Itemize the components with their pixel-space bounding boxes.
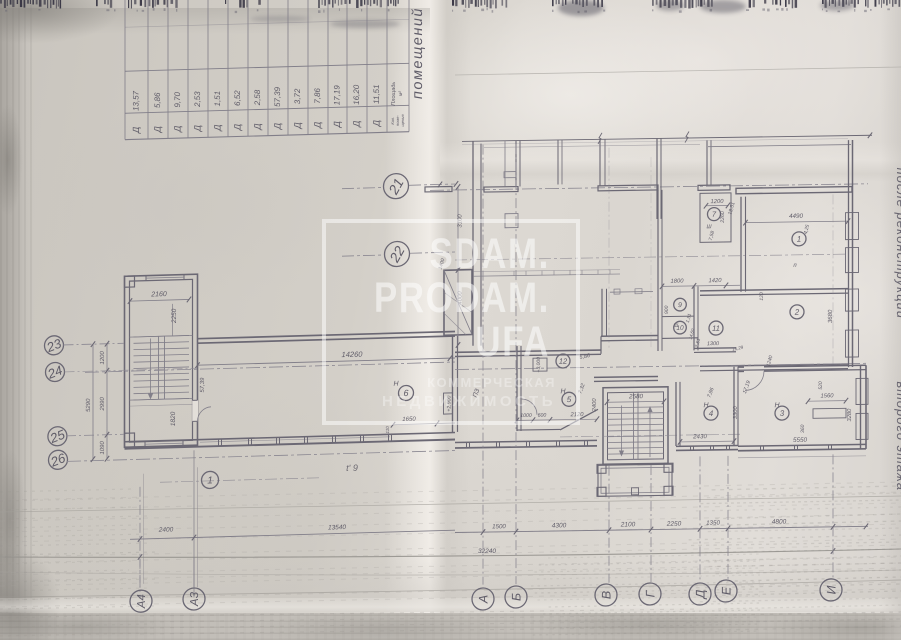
svg-text:7: 7 bbox=[712, 210, 717, 219]
svg-text:21: 21 bbox=[385, 175, 407, 197]
svg-text:2430: 2430 bbox=[692, 433, 707, 440]
svg-text:2100: 2100 bbox=[620, 521, 636, 528]
svg-text:Д: Д bbox=[193, 124, 203, 132]
svg-text:7,86: 7,86 bbox=[706, 387, 715, 399]
svg-text:900: 900 bbox=[664, 305, 670, 314]
svg-text:2990: 2990 bbox=[100, 396, 106, 411]
svg-text:520: 520 bbox=[818, 381, 824, 390]
svg-text:1200: 1200 bbox=[711, 199, 725, 205]
svg-text:4: 4 bbox=[709, 409, 714, 418]
svg-text:2260: 2260 bbox=[720, 211, 726, 224]
svg-text:1500: 1500 bbox=[492, 523, 506, 530]
svg-text:1800: 1800 bbox=[671, 279, 685, 285]
svg-text:1820: 1820 bbox=[170, 411, 177, 426]
svg-text:Д: Д bbox=[213, 124, 223, 132]
svg-text:Д: Д bbox=[332, 120, 342, 128]
svg-text:Д: Д bbox=[693, 589, 707, 600]
svg-text:360: 360 bbox=[800, 424, 806, 433]
svg-text:120: 120 bbox=[759, 292, 765, 301]
svg-text:5550: 5550 bbox=[793, 437, 808, 444]
svg-text:Д: Д bbox=[153, 125, 163, 133]
svg-text:3,72: 3,72 bbox=[293, 88, 302, 104]
svg-text:1: 1 bbox=[797, 235, 801, 244]
svg-text:13540: 13540 bbox=[328, 524, 346, 532]
svg-text:11,51: 11,51 bbox=[372, 84, 381, 104]
svg-text:Ш: Ш bbox=[706, 224, 712, 230]
svg-text:1,51: 1,51 bbox=[685, 313, 693, 324]
svg-text:32240: 32240 bbox=[478, 548, 496, 555]
svg-text:4300: 4300 bbox=[552, 522, 567, 529]
svg-text:п: п bbox=[793, 263, 797, 269]
svg-text:5290: 5290 bbox=[86, 398, 92, 412]
svg-text:щения: щения bbox=[400, 113, 405, 126]
svg-text:2,51: 2,51 bbox=[694, 338, 703, 350]
svg-text:И: И bbox=[824, 585, 838, 594]
svg-text:57,39: 57,39 bbox=[273, 86, 282, 107]
svg-text:А3: А3 bbox=[189, 591, 201, 607]
svg-text:Д: Д bbox=[273, 122, 283, 130]
svg-text:1: 1 bbox=[207, 475, 213, 486]
svg-text:3300: 3300 bbox=[733, 406, 739, 420]
svg-text:57,39: 57,39 bbox=[200, 377, 206, 393]
svg-text:второго этажа: второго этажа bbox=[894, 381, 901, 491]
svg-text:2400: 2400 bbox=[158, 526, 174, 533]
svg-text:Площадь: Площадь bbox=[391, 82, 397, 106]
svg-text:1200: 1200 bbox=[100, 350, 106, 364]
svg-text:Д: Д bbox=[313, 121, 323, 129]
svg-text:1560: 1560 bbox=[821, 393, 835, 399]
svg-text:2,58: 2,58 bbox=[253, 89, 262, 106]
svg-text:9,70: 9,70 bbox=[173, 91, 182, 107]
svg-text:1300: 1300 bbox=[707, 341, 720, 347]
svg-text:Д: Д bbox=[233, 123, 243, 131]
svg-text:Д: Д bbox=[293, 121, 303, 129]
svg-text:4800: 4800 bbox=[772, 519, 787, 526]
svg-text:Д: Д bbox=[253, 123, 263, 131]
svg-text:2,53: 2,53 bbox=[193, 91, 202, 108]
svg-text:А4: А4 bbox=[136, 594, 148, 609]
svg-text:3: 3 bbox=[780, 409, 785, 418]
svg-text:помещений: помещений bbox=[410, 7, 426, 100]
svg-text:В: В bbox=[599, 591, 613, 600]
svg-text:Б: Б bbox=[509, 593, 523, 601]
svg-text:17,19: 17,19 bbox=[742, 380, 752, 395]
svg-text:5,86: 5,86 bbox=[153, 92, 162, 108]
svg-text:2400: 2400 bbox=[592, 398, 598, 413]
svg-text:17,19: 17,19 bbox=[333, 85, 342, 106]
svg-text:после реконструкции: после реконструкции bbox=[894, 167, 901, 319]
svg-text:Ш: Ш bbox=[674, 323, 679, 329]
svg-text:16,20: 16,20 bbox=[352, 84, 361, 105]
svg-text:7,58: 7,58 bbox=[708, 230, 716, 241]
svg-text:13,57: 13,57 bbox=[132, 90, 141, 111]
svg-text:Е: Е bbox=[719, 586, 733, 595]
svg-text:2250: 2250 bbox=[666, 521, 682, 528]
svg-text:3280: 3280 bbox=[847, 408, 853, 422]
svg-text:9: 9 bbox=[678, 302, 682, 309]
svg-text:м²: м² bbox=[398, 91, 404, 97]
svg-text:2580: 2580 bbox=[628, 393, 644, 400]
svg-text:4,25: 4,25 bbox=[803, 224, 811, 235]
svg-text:1090: 1090 bbox=[100, 440, 106, 454]
svg-text:6,52: 6,52 bbox=[233, 90, 242, 106]
svg-text:110: 110 bbox=[385, 426, 390, 434]
svg-text:11: 11 bbox=[712, 324, 720, 333]
svg-text:1420: 1420 bbox=[709, 278, 723, 284]
svg-text:7,86: 7,86 bbox=[313, 87, 322, 103]
svg-text:1350: 1350 bbox=[706, 520, 720, 527]
svg-text:А: А bbox=[476, 595, 490, 605]
svg-text:2160: 2160 bbox=[150, 291, 167, 298]
svg-text:1,51: 1,51 bbox=[213, 91, 222, 107]
svg-text:t' 9: t' 9 bbox=[346, 463, 358, 473]
svg-text:2: 2 bbox=[794, 308, 800, 317]
svg-text:Д: Д bbox=[173, 125, 183, 133]
svg-text:4490: 4490 bbox=[789, 213, 804, 220]
svg-text:2250: 2250 bbox=[171, 308, 178, 324]
svg-text:Д: Д bbox=[372, 119, 382, 127]
svg-text:Д: Д bbox=[352, 120, 362, 128]
svg-text:Д: Д bbox=[131, 126, 141, 134]
